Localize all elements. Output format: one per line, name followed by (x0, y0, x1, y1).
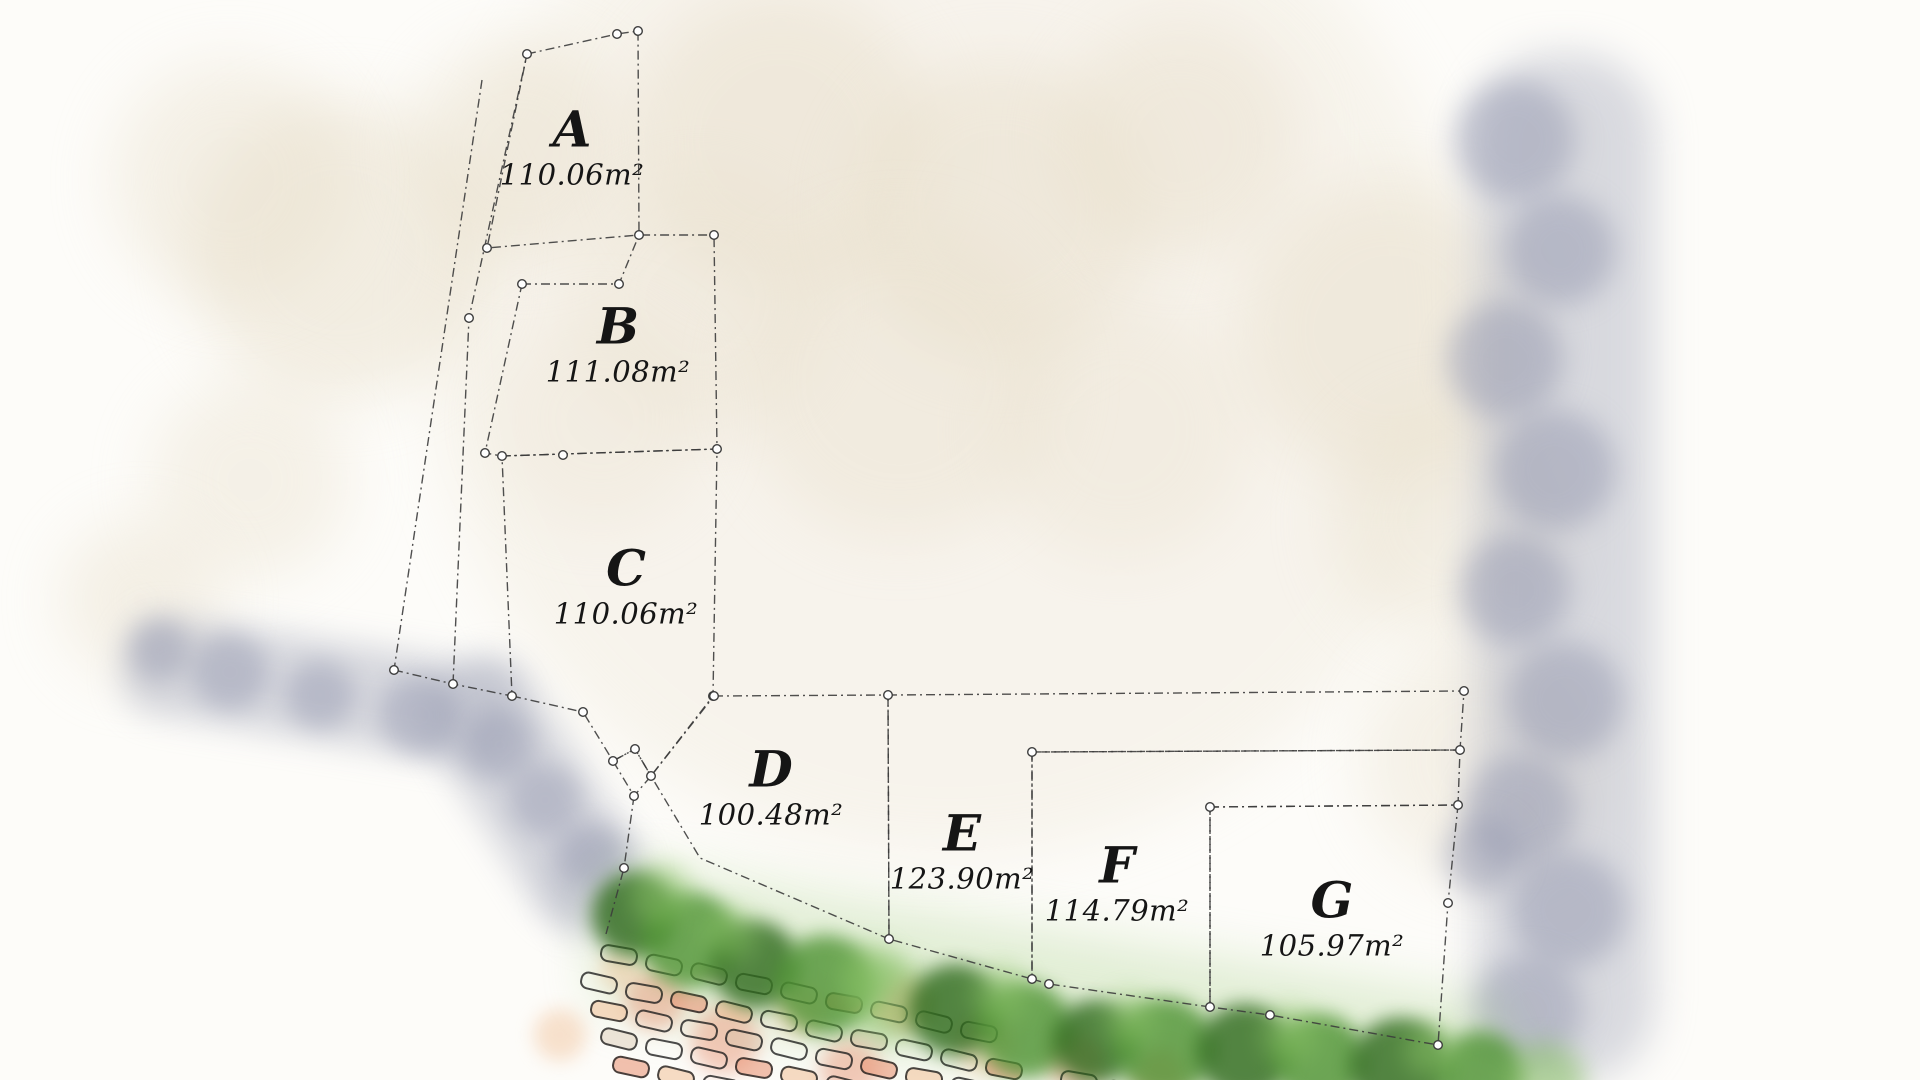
survey-marker (613, 30, 622, 39)
survey-marker (449, 680, 458, 689)
survey-marker (1028, 748, 1037, 757)
survey-marker (635, 231, 644, 240)
survey-marker (631, 745, 640, 754)
access-strip-west-line (394, 80, 482, 670)
survey-marker (713, 445, 722, 454)
parcel-outline-b (485, 235, 717, 456)
survey-marker (1266, 1011, 1275, 1020)
access-strip-east-line (453, 54, 527, 684)
survey-marker (481, 449, 490, 458)
survey-marker (390, 666, 399, 675)
survey-marker (647, 772, 656, 781)
survey-marker (885, 935, 894, 944)
survey-marker (710, 231, 719, 240)
survey-marker (710, 692, 719, 701)
parcel-outline-e (888, 691, 1464, 979)
parcel-outline-d (651, 695, 889, 939)
parcel-outline-f (1032, 750, 1460, 1007)
survey-marker (579, 708, 588, 717)
survey-marker (620, 864, 629, 873)
survey-marker (1206, 803, 1215, 812)
survey-marker (1028, 975, 1037, 984)
survey-marker (1434, 1041, 1443, 1050)
survey-marker (1206, 1003, 1215, 1012)
survey-marker (465, 314, 474, 323)
survey-marker (615, 280, 624, 289)
survey-marker (1444, 899, 1453, 908)
survey-marker (498, 452, 507, 461)
survey-marker (884, 691, 893, 700)
survey-marker (1454, 801, 1463, 810)
site-plan-canvas: A 110.06m² B 111.08m² C 110.06m² D 100.4… (0, 0, 1920, 1080)
survey-marker (559, 451, 568, 460)
survey-marker (634, 27, 643, 36)
parcel-outline-c (502, 449, 717, 776)
survey-marker (609, 757, 618, 766)
survey-marker (508, 692, 517, 701)
parcel-boundaries (0, 0, 1920, 1080)
parcel-outline-a (487, 31, 639, 248)
parcel-outline-g (1210, 805, 1458, 1045)
junction-box (613, 749, 651, 796)
survey-marker (630, 792, 639, 801)
survey-marker (523, 50, 532, 59)
survey-marker (518, 280, 527, 289)
survey-marker (1045, 980, 1054, 989)
survey-marker (483, 244, 492, 253)
survey-marker (1460, 687, 1469, 696)
survey-marker (1456, 746, 1465, 755)
